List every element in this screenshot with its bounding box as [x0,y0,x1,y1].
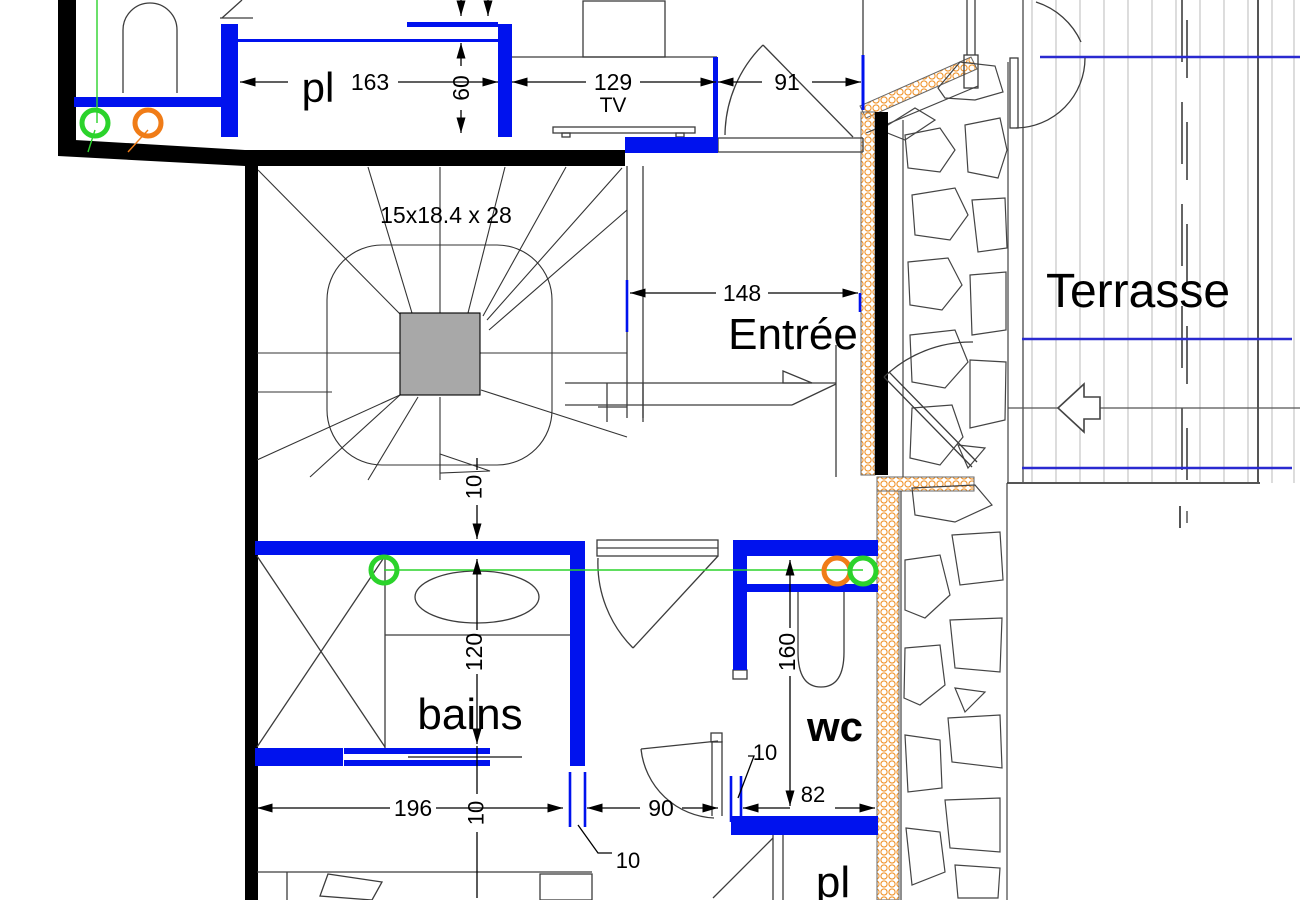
floor-plan: 163 60 129 TV 91 148 10 120 160 196 10 9… [0,0,1300,900]
dim-129: 129 [594,69,632,95]
dim-120: 120 [461,633,487,671]
dim-148: 148 [723,280,761,306]
label-entry: Entrée [728,310,858,359]
dim-196: 196 [394,795,432,821]
dim-163: 163 [351,69,389,95]
dim-10-leader-left: 10 [616,848,640,873]
dim-10-bath: 10 [464,801,489,825]
label-stair-note: 15x18.4 x 28 [380,202,512,228]
stair-newel [400,313,480,395]
dim-60: 60 [448,75,474,101]
dim-90: 90 [648,795,674,821]
dim-10-stair: 10 [462,475,487,499]
label-closet-bottom: pl [816,858,850,900]
marker-orange-icon [135,110,161,136]
dim-82: 82 [801,782,825,807]
entry-direction-arrow-icon [1058,384,1100,432]
door-bath [597,540,718,648]
niche-arch [123,3,177,93]
toilet [798,592,844,687]
terrace-structure [1007,0,1300,528]
marker-orange-icon [824,558,850,584]
dim-160: 160 [774,633,800,671]
door-entry [884,342,977,467]
tv-unit [583,1,665,57]
label-closet-top: pl [302,64,335,111]
tv-shelf [553,127,695,133]
label-wc: wc [806,703,863,750]
door-terrace [1010,2,1085,128]
dim-91: 91 [774,69,800,95]
floor-plan-canvas: 163 60 129 TV 91 148 10 120 160 196 10 9… [0,0,1300,900]
label-bath: bains [417,690,522,739]
dim-10-leader-right: 10 [753,740,777,765]
marker-green-icon [850,558,876,584]
tv-label: TV [600,94,627,117]
label-terrace: Terrasse [1046,265,1230,318]
